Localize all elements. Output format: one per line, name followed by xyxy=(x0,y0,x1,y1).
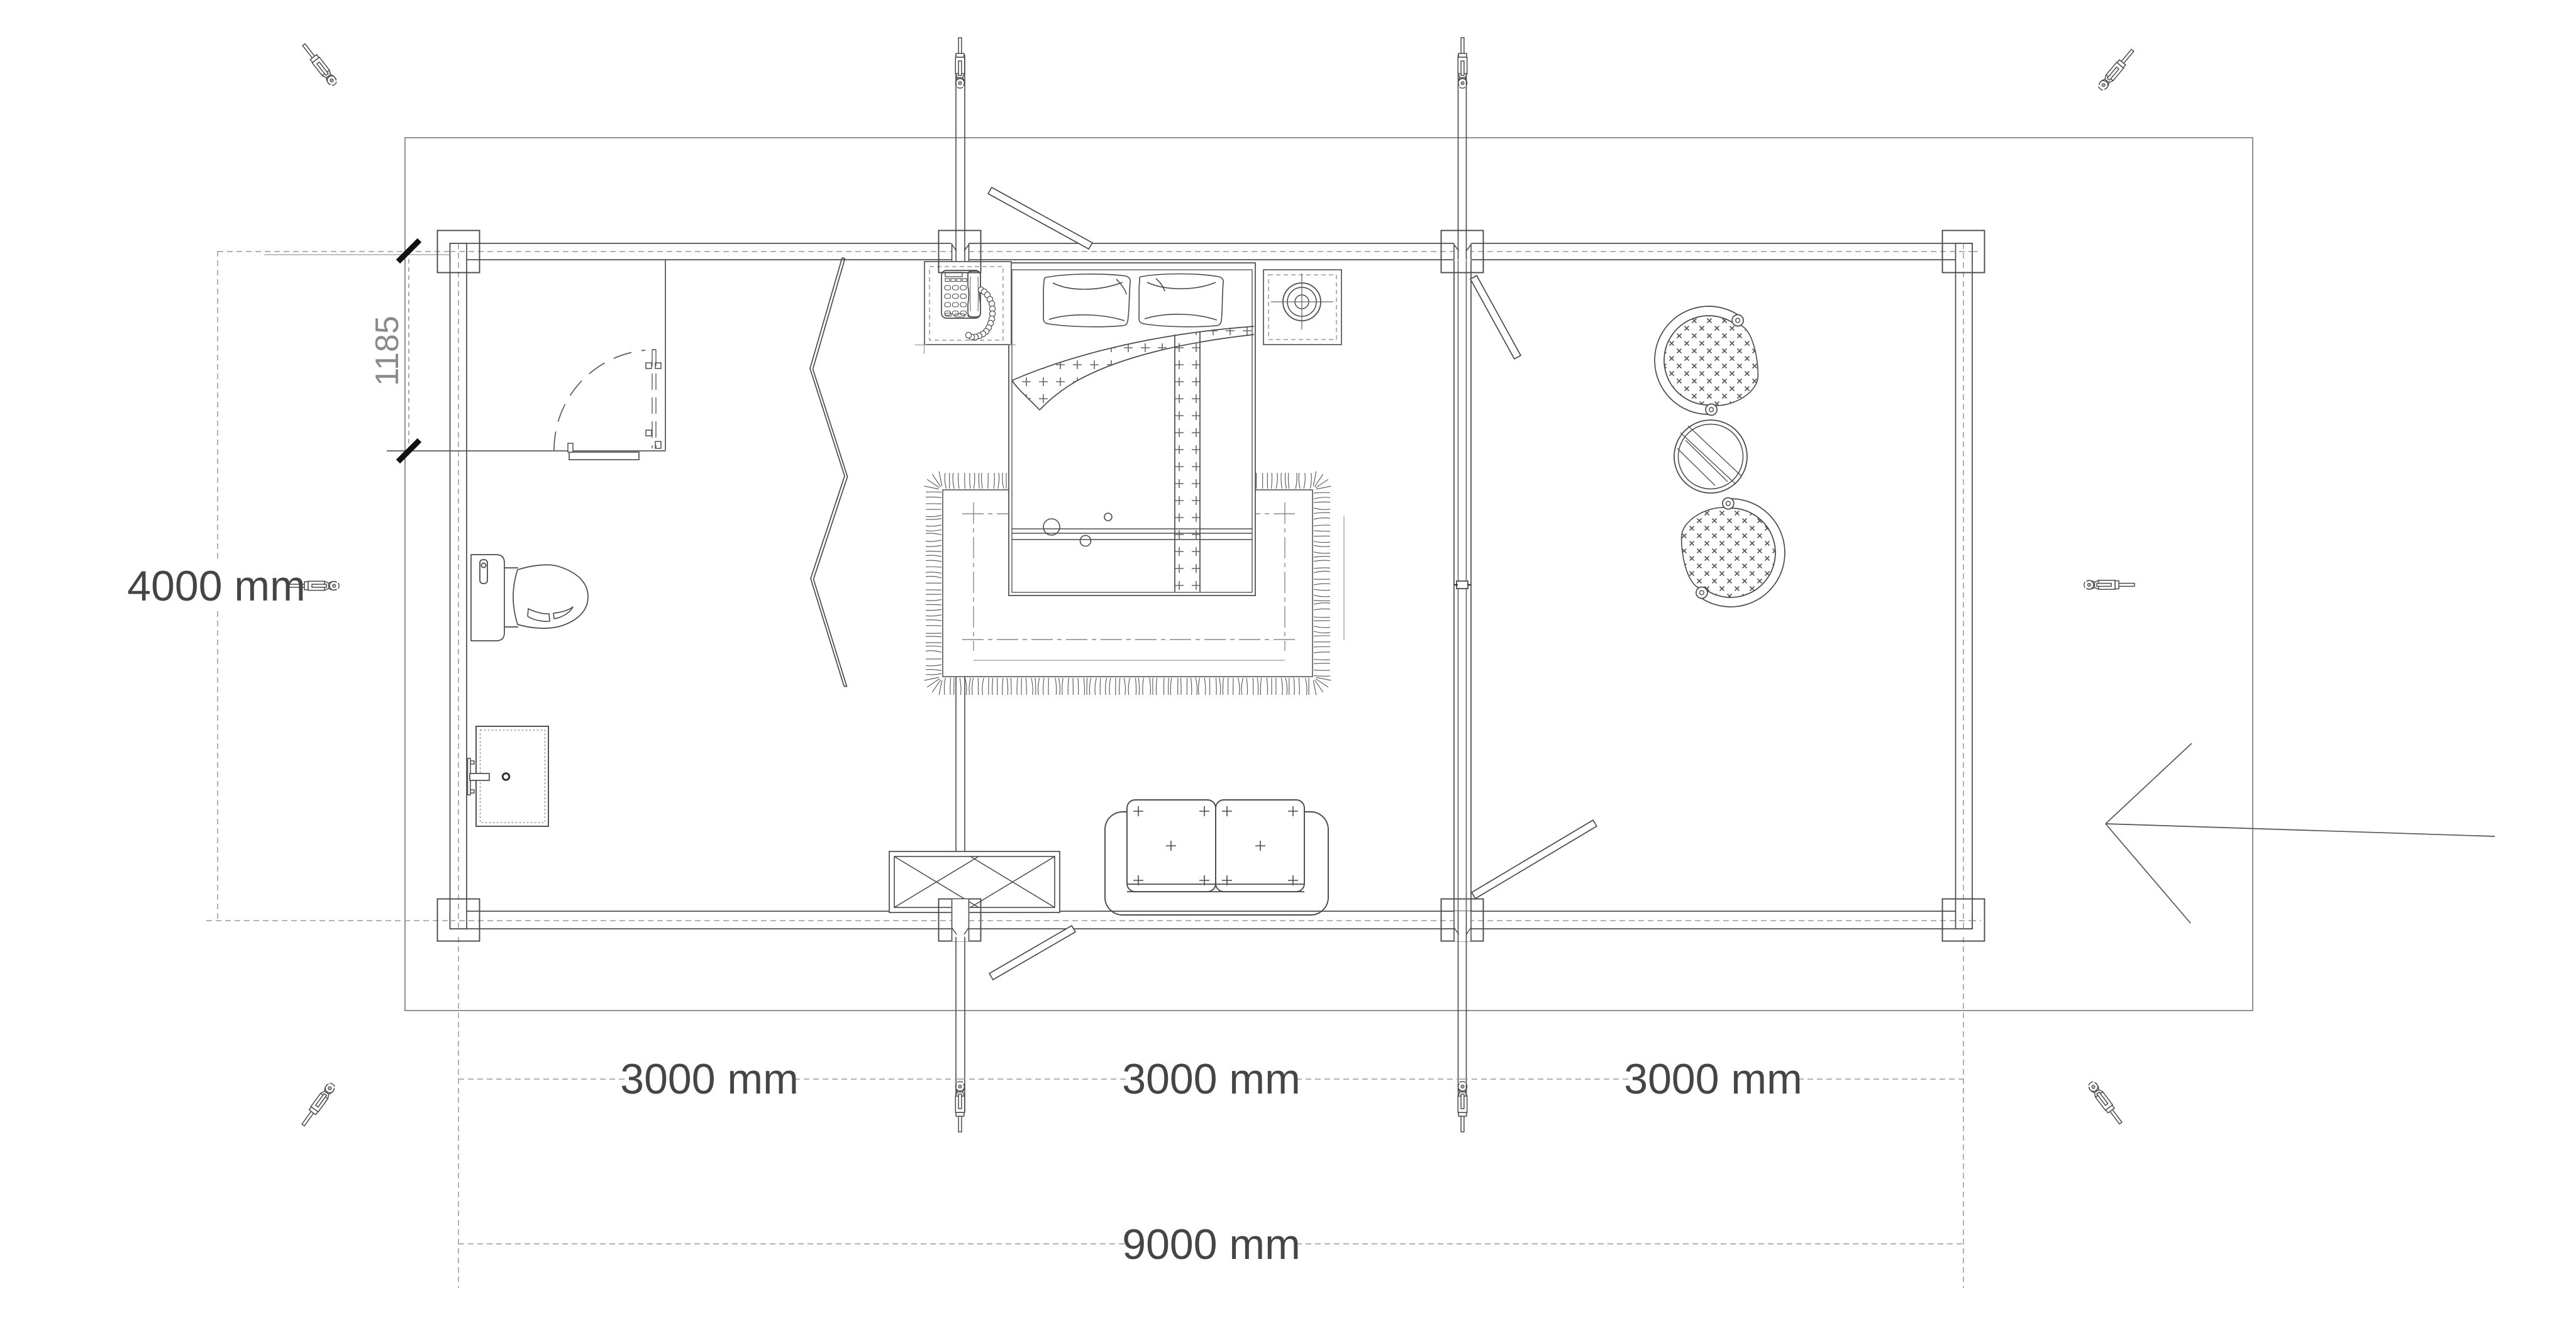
svg-text:3000 mm: 3000 mm xyxy=(1624,1055,1802,1103)
svg-text:3000 mm: 3000 mm xyxy=(620,1055,798,1103)
svg-text:1185: 1185 xyxy=(369,316,406,386)
svg-text:9000 mm: 9000 mm xyxy=(1122,1221,1300,1268)
svg-text:3000 mm: 3000 mm xyxy=(1122,1055,1300,1103)
svg-text:4000 mm: 4000 mm xyxy=(127,562,305,610)
